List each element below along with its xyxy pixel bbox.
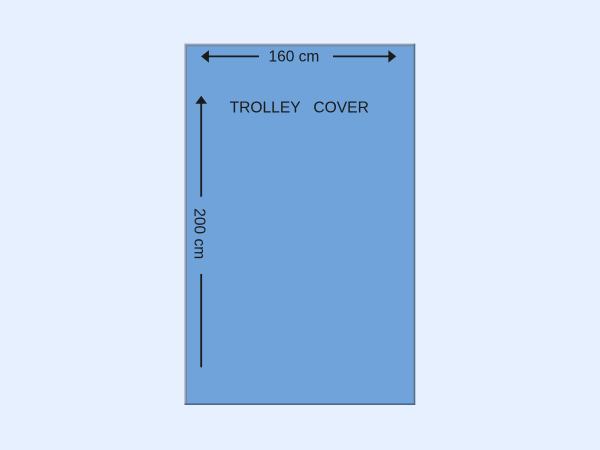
svg-text:160 cm: 160 cm	[269, 49, 320, 66]
svg-text:200 cm: 200 cm	[190, 208, 207, 259]
svg-text:TROLLEY COVER: TROLLEY COVER	[230, 99, 369, 116]
